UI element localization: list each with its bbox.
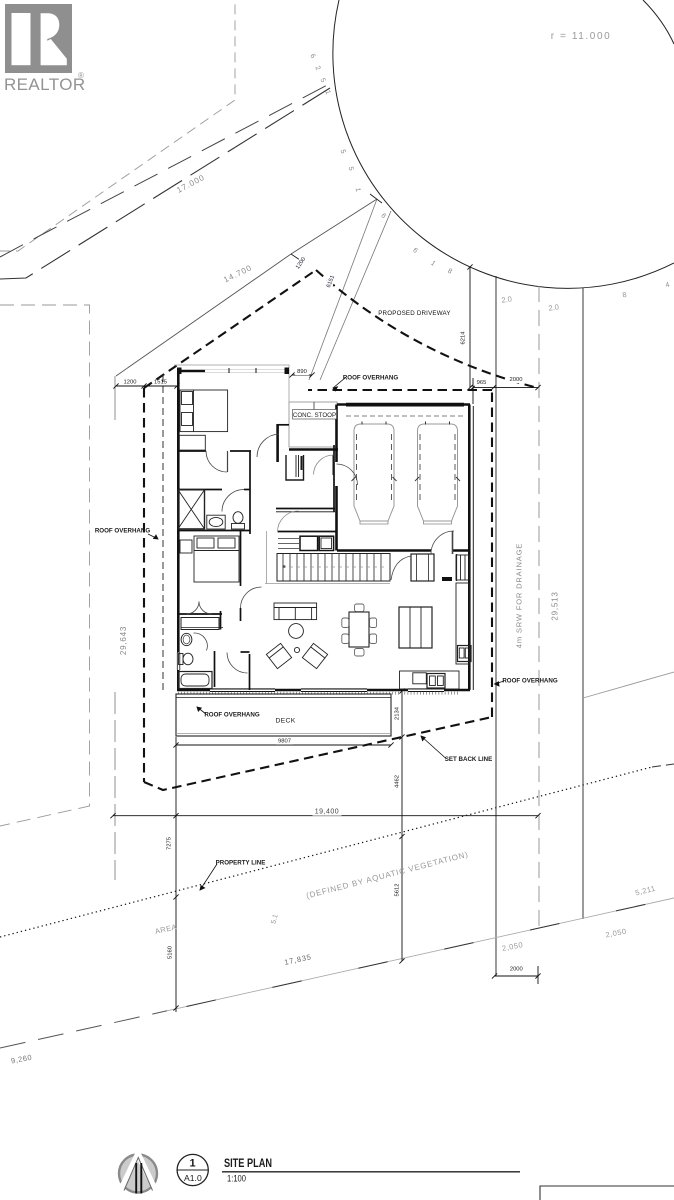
svg-text:5160: 5160 — [168, 946, 174, 959]
svg-text:2000: 2000 — [510, 967, 523, 973]
svg-text:A1.0: A1.0 — [184, 1173, 202, 1183]
svg-text:CONC. STOOP: CONC. STOOP — [293, 412, 336, 419]
svg-text:DECK: DECK — [275, 718, 295, 725]
svg-text:1200: 1200 — [124, 380, 137, 386]
svg-text:7275: 7275 — [167, 837, 173, 850]
svg-text:9807: 9807 — [278, 739, 291, 745]
svg-text:4462: 4462 — [395, 775, 401, 788]
svg-text:890: 890 — [297, 369, 307, 375]
svg-text:2.0: 2.0 — [548, 302, 560, 312]
svg-text:SET BACK LINE: SET BACK LINE — [445, 756, 492, 763]
svg-text:5612: 5612 — [395, 884, 401, 897]
svg-text:19,400: 19,400 — [315, 809, 339, 816]
svg-text:29,513: 29,513 — [551, 591, 560, 620]
svg-text:4m SRW FOR DRAINAGE: 4m SRW FOR DRAINAGE — [515, 543, 524, 648]
svg-text:965: 965 — [477, 380, 487, 386]
svg-text:PROPOSED DRIVEWAY: PROPOSED DRIVEWAY — [378, 310, 451, 317]
svg-text:1: 1 — [189, 1158, 195, 1170]
svg-text:6214: 6214 — [461, 331, 467, 345]
svg-text:ROOF OVERHANG: ROOF OVERHANG — [95, 528, 151, 535]
svg-text:29,643: 29,643 — [119, 626, 128, 655]
svg-text:1515: 1515 — [154, 380, 167, 386]
svg-text:PROPERTY LINE: PROPERTY LINE — [216, 860, 266, 867]
svg-text:ROOF OVERHANG: ROOF OVERHANG — [502, 678, 558, 685]
svg-text:ROOF OVERHANG: ROOF OVERHANG — [204, 712, 260, 719]
svg-text:1:100: 1:100 — [227, 1174, 246, 1184]
svg-text:ROOF OVERHANG: ROOF OVERHANG — [343, 375, 399, 382]
svg-text:SITE PLAN: SITE PLAN — [224, 1156, 272, 1170]
svg-text:r = 11.000: r = 11.000 — [551, 31, 612, 42]
svg-text:2.0: 2.0 — [501, 294, 513, 304]
svg-text:2000: 2000 — [510, 377, 523, 383]
svg-text:2134: 2134 — [395, 706, 401, 720]
svg-text:®: ® — [78, 71, 84, 80]
svg-text:REALTOR: REALTOR — [4, 75, 86, 94]
